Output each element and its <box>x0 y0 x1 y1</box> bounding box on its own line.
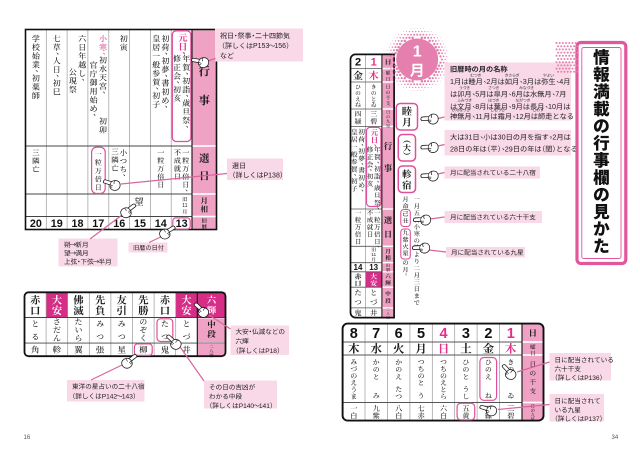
svg-text:P142: P142 <box>102 393 118 400</box>
svg-text:P140: P140 <box>239 403 255 410</box>
svg-text:8: 8 <box>350 326 358 342</box>
svg-text:30: 30 <box>498 133 506 142</box>
svg-text:6: 6 <box>395 326 403 342</box>
svg-text:31: 31 <box>464 133 472 142</box>
svg-text:156: 156 <box>274 43 286 50</box>
svg-text:6: 6 <box>512 90 516 99</box>
svg-text:1: 1 <box>507 326 515 342</box>
svg-text:3: 3 <box>523 77 527 86</box>
svg-text:1: 1 <box>450 77 454 86</box>
svg-text:13: 13 <box>369 263 378 272</box>
svg-text:5: 5 <box>475 90 479 99</box>
svg-text:4: 4 <box>439 326 447 342</box>
svg-text:13: 13 <box>176 218 188 230</box>
svg-text:P18: P18 <box>265 348 277 355</box>
svg-text:4: 4 <box>559 77 563 86</box>
svg-text:28: 28 <box>450 144 458 153</box>
svg-text:7: 7 <box>372 326 380 342</box>
svg-text:14: 14 <box>155 218 167 230</box>
svg-text:5: 5 <box>417 326 425 342</box>
svg-text:19: 19 <box>51 218 63 230</box>
svg-text:34: 34 <box>612 435 619 441</box>
svg-text:11: 11 <box>371 252 376 258</box>
svg-text:1: 1 <box>371 57 377 69</box>
svg-text:11: 11 <box>475 112 482 121</box>
svg-text:18: 18 <box>71 218 83 230</box>
svg-text:P137: P137 <box>584 416 600 423</box>
svg-text:P138: P138 <box>264 172 280 179</box>
svg-text:2: 2 <box>484 326 492 342</box>
svg-text:17: 17 <box>92 218 104 230</box>
svg-text:20: 20 <box>30 218 42 230</box>
svg-text:11: 11 <box>182 203 187 209</box>
svg-text:14: 14 <box>354 263 363 272</box>
svg-text:2: 2 <box>355 57 361 69</box>
svg-text:9: 9 <box>512 102 516 111</box>
svg-text:141: 141 <box>259 403 270 410</box>
svg-text:10: 10 <box>548 102 556 111</box>
svg-text:3: 3 <box>462 326 470 342</box>
svg-text:P136: P136 <box>584 375 600 382</box>
svg-text:2: 2 <box>486 77 490 86</box>
svg-text:1: 1 <box>413 43 422 60</box>
svg-text:2: 2 <box>552 133 556 142</box>
svg-text:8: 8 <box>475 102 479 111</box>
svg-text:12: 12 <box>516 112 524 121</box>
svg-text:7: 7 <box>555 90 559 99</box>
svg-text:15: 15 <box>134 218 146 230</box>
svg-text:16: 16 <box>24 435 31 441</box>
svg-text:P153: P153 <box>253 43 269 50</box>
svg-text:29: 29 <box>505 144 513 153</box>
svg-text:143: 143 <box>122 393 133 400</box>
